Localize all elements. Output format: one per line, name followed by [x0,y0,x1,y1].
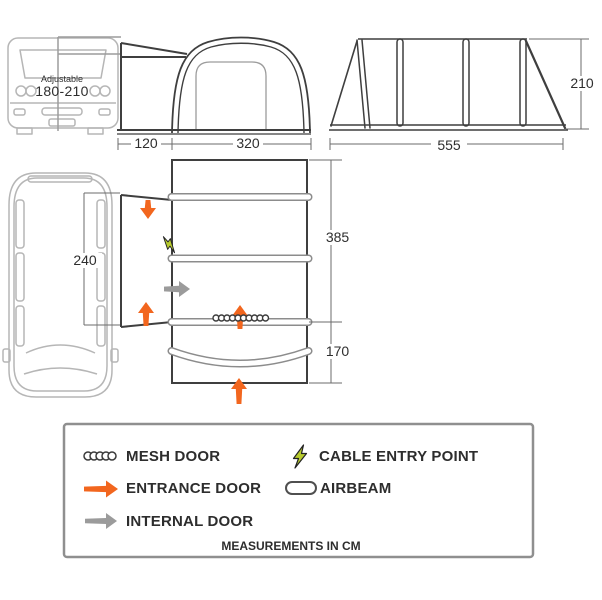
dim-awning-width: 320 [233,136,263,151]
dim-main-length: 385 [320,230,355,245]
dim-side-height: 210 [564,76,600,91]
legend-cable-entry-label: CABLE ENTRY POINT [319,449,478,465]
entrance-door-arrow-tunnel-top [140,200,156,219]
awning-dimensions-diagram: Adjustable 180-210 120 320 555 210 240 3… [0,0,602,600]
awning-side-view [329,39,568,130]
airbeam-poles [397,39,526,126]
front-door-outline [196,62,266,131]
legend-airbeam-label: AIRBEAM [320,481,391,497]
legend-mesh-door-label: MESH DOOR [126,449,220,465]
cable-entry-icon [159,235,180,254]
entrance-door-arrow-front [231,378,247,404]
adjustable-range-text: 180-210 [26,84,98,99]
entrance-door-arrow-tunnel-bottom [138,302,154,326]
awning-floorplan [138,160,309,404]
dim-attachment-length: 240 [68,253,102,268]
internal-door-arrow [164,281,190,297]
legend-internal-door-label: INTERNAL DOOR [126,514,253,530]
legend-entrance-door-label: ENTRANCE DOOR [126,481,261,497]
dim-side-length: 555 [431,138,467,153]
mesh-door-icon [213,315,269,321]
van-top-view [3,173,118,397]
airbeam-top-view [172,197,309,364]
dim-tunnel-width: 120 [131,136,161,151]
legend-airbeam-icon [286,482,316,494]
dim-porch-length: 170 [320,344,355,359]
tunnel-front-view [121,43,187,131]
measurements-footer: MEASUREMENTS IN CM [60,540,522,553]
legend-mesh-door-icon [84,452,116,460]
awning-front-view [117,38,311,135]
adjustable-height-label: Adjustable 180-210 [26,75,98,99]
